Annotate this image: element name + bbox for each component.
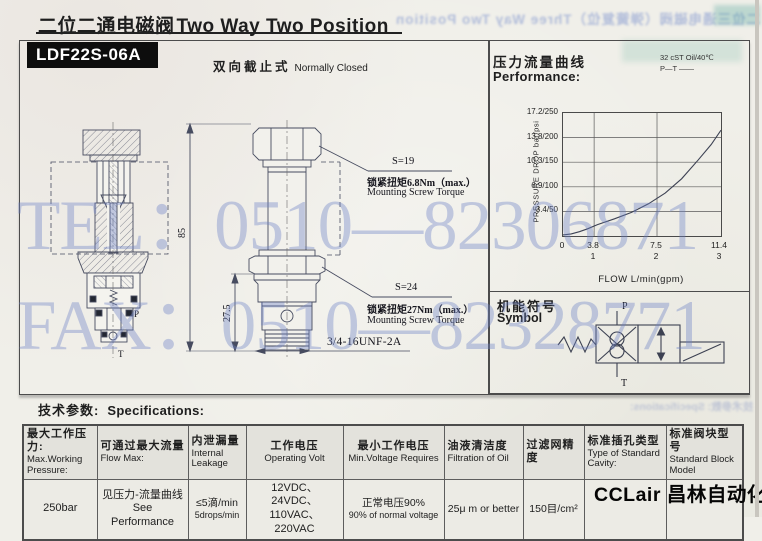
hydraulic-symbol: P T [558, 301, 724, 389]
external-view: 85 27.5 [177, 120, 452, 360]
valve-drawings: P T 85 [0, 0, 762, 517]
dim-85-label: 85 [177, 228, 188, 238]
port-t-label: T [118, 349, 124, 359]
dim-27-5-label: 27.5 [222, 305, 233, 323]
spring-symbol [558, 337, 596, 352]
symbol-port-t: T [621, 378, 627, 389]
cross-section-view: P T [51, 122, 168, 359]
port-p-label: P [134, 309, 139, 319]
symbol-port-p: P [622, 301, 628, 312]
